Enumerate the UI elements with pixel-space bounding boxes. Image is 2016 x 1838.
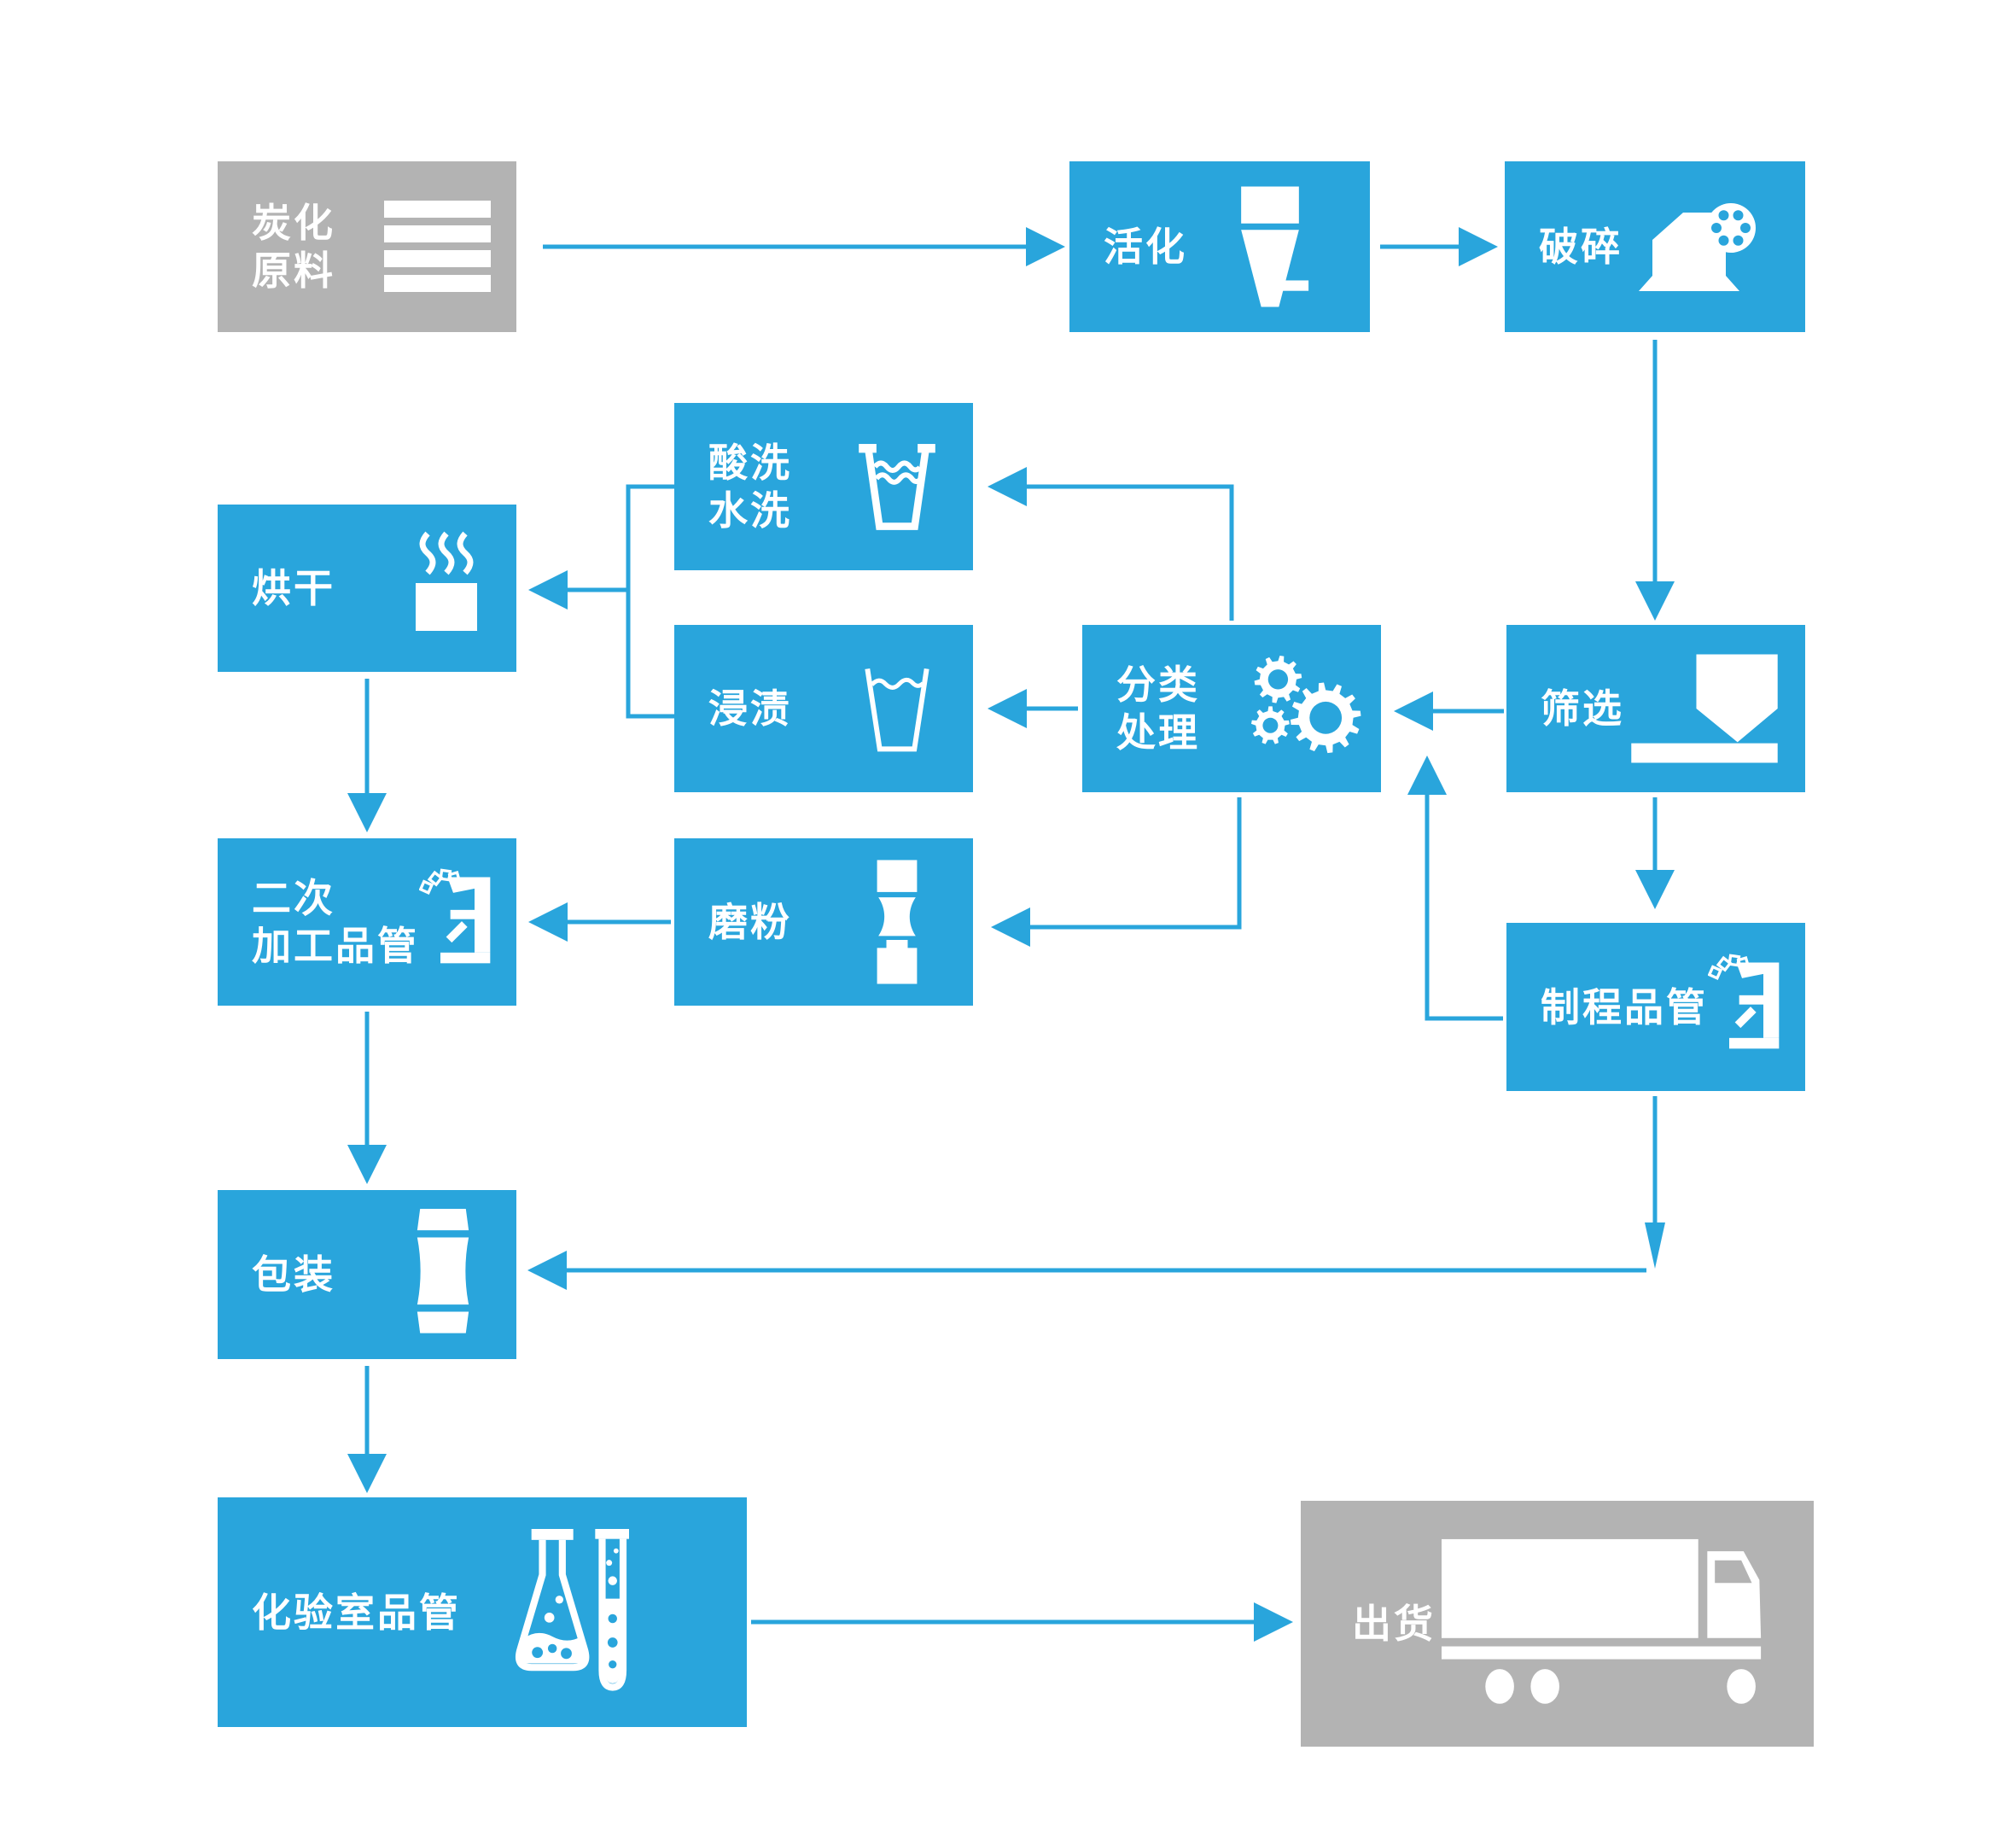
node-label: 酸洗 水洗 <box>708 439 792 534</box>
node-screening: 筛选 <box>1506 625 1805 792</box>
node-laboratory-qc: 化验室品管 <box>218 1497 747 1727</box>
node-label: 制程品管 <box>1541 983 1708 1030</box>
funnel-icon <box>1230 179 1310 314</box>
node-label: 包装 <box>252 1251 335 1298</box>
gears-icon <box>1240 655 1368 762</box>
node-label: 化验室品管 <box>252 1588 461 1636</box>
edge-activation-to-crushing <box>1380 227 1498 266</box>
edge-classification-to-acid-wash <box>988 467 1232 621</box>
water-glass-icon <box>850 439 944 534</box>
node-crushing: 破碎 <box>1505 161 1805 332</box>
edge-grinding-to-secondary-qc <box>528 902 671 942</box>
node-impregnation: 浸渍 <box>674 625 973 792</box>
edge-screening-to-classification <box>1394 691 1504 731</box>
sieve-icon <box>1631 655 1778 763</box>
edge-process-qc-to-packaging <box>527 1096 1665 1290</box>
node-label: 磨粉 <box>708 898 792 946</box>
node-label: 浸渍 <box>708 685 792 732</box>
microscope-icon <box>1708 950 1793 1065</box>
edge-secondary-qc-to-packaging <box>347 1012 387 1184</box>
edge-carbonized-to-activation <box>543 227 1065 266</box>
node-packaging: 包装 <box>218 1190 516 1359</box>
node-label: 筛选 <box>1541 685 1624 732</box>
package-icon <box>407 1209 479 1340</box>
node-label: 破碎 <box>1539 223 1623 271</box>
node-shipping: 出货 <box>1301 1501 1814 1747</box>
node-classification-processing: 分类 处理 <box>1082 625 1381 792</box>
mill-icon <box>864 860 930 984</box>
edge-lab-qc-to-shipping <box>751 1602 1293 1642</box>
microscope-icon <box>419 865 504 979</box>
crusher-icon <box>1630 195 1775 298</box>
steam-cup-icon <box>402 530 491 646</box>
edge-classification-to-grinding <box>991 797 1239 947</box>
node-label: 分类 处理 <box>1116 661 1200 756</box>
node-carbonized-raw-material: 炭化 原料 <box>218 161 516 332</box>
node-drying: 烘干 <box>218 505 516 672</box>
node-process-qc: 制程品管 <box>1506 923 1805 1091</box>
node-label: 烘干 <box>252 564 335 612</box>
node-activation: 活化 <box>1069 161 1370 332</box>
node-grinding: 磨粉 <box>674 838 973 1006</box>
glass-icon <box>852 662 942 756</box>
material-stack-icon <box>384 201 491 293</box>
edge-wash-impregnation-to-drying <box>528 487 674 716</box>
truck-icon <box>1442 1532 1781 1715</box>
node-label: 二次 加工品管 <box>252 874 419 970</box>
edge-classification-to-impregnation <box>988 689 1078 728</box>
flasks-icon <box>510 1522 629 1703</box>
edge-crushing-to-screening <box>1635 340 1675 621</box>
edge-packaging-to-lab-qc <box>347 1366 387 1493</box>
node-secondary-processing-qc: 二次 加工品管 <box>218 838 516 1006</box>
node-label: 炭化 原料 <box>252 199 335 295</box>
node-label: 出货 <box>1352 1600 1436 1648</box>
edge-drying-to-secondary-qc <box>347 679 387 832</box>
edge-process-qc-rework-to-classification <box>1407 756 1503 1018</box>
node-acid-wash-water-wash: 酸洗 水洗 <box>674 403 973 570</box>
node-label: 活化 <box>1104 223 1187 271</box>
edge-screening-to-process-qc <box>1635 797 1675 909</box>
flowchart-canvas: 炭化 原料 活化 破碎 <box>0 0 2016 1838</box>
